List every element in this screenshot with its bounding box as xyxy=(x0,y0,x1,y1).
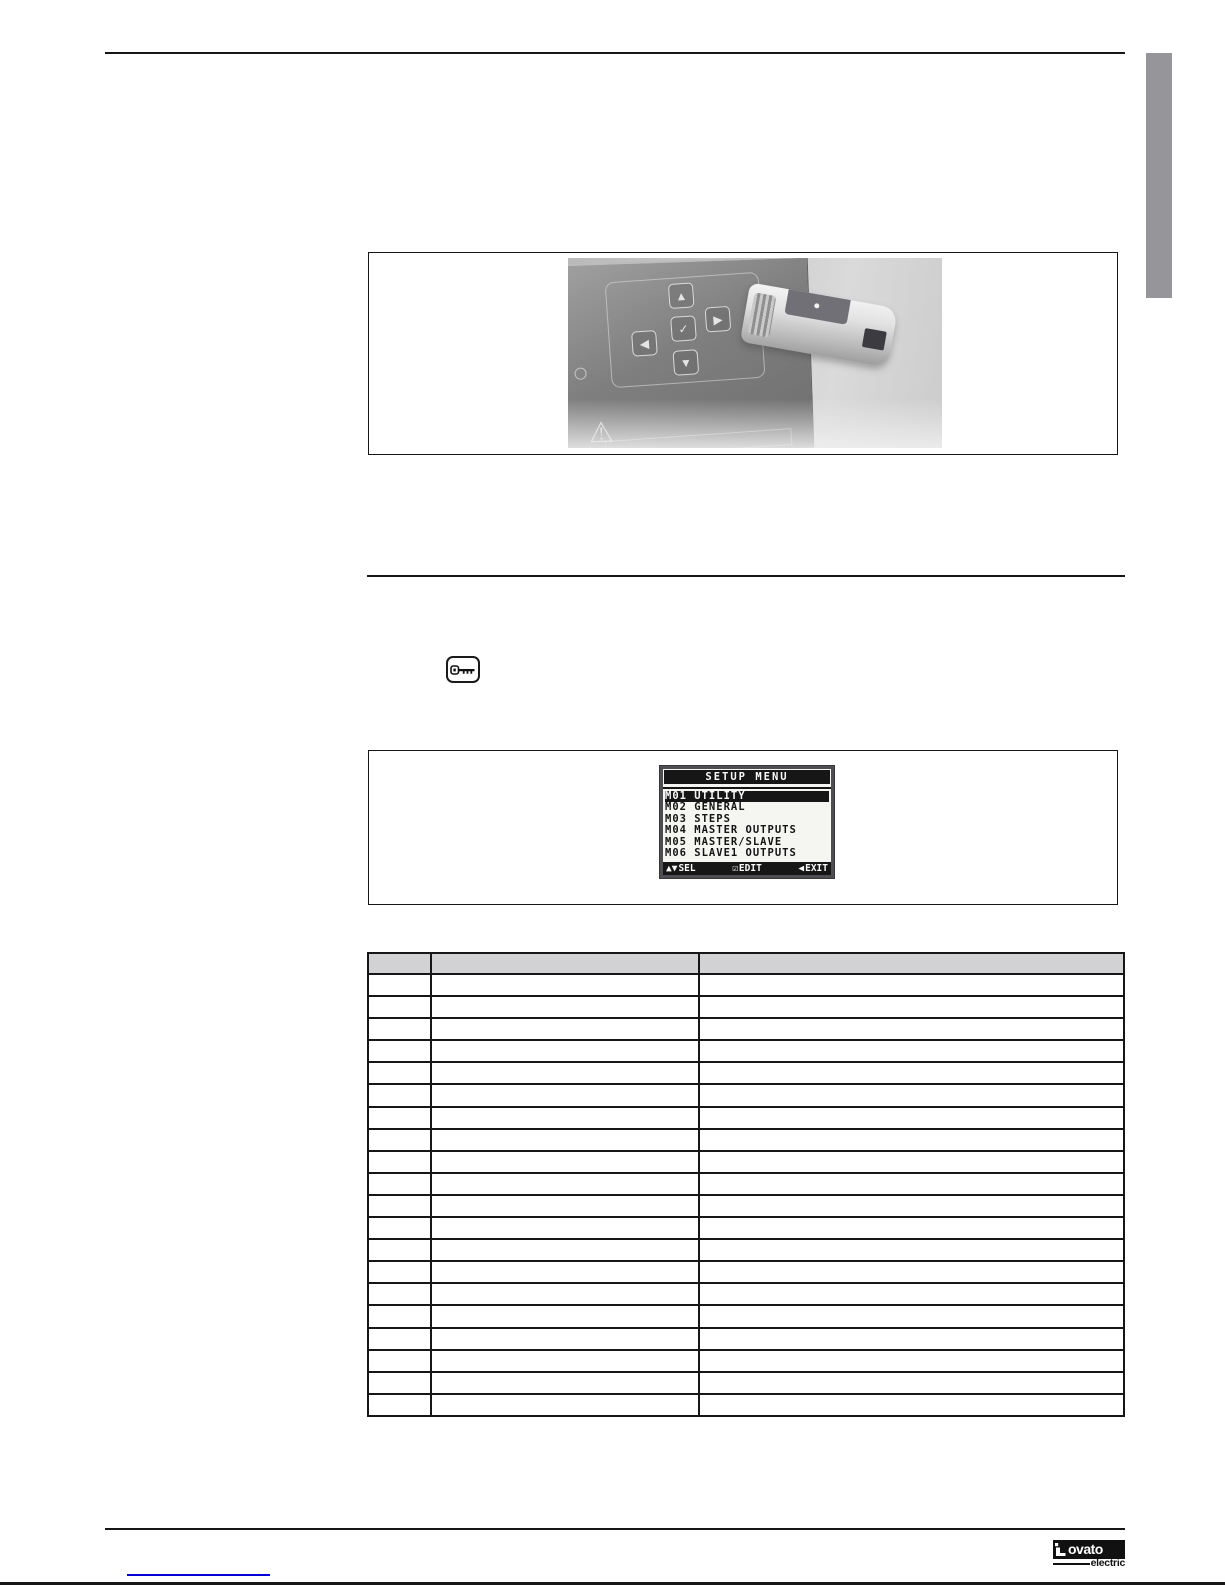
table-cell xyxy=(699,1062,1124,1084)
section-divider xyxy=(367,575,1125,577)
table-cell xyxy=(699,1261,1124,1283)
table-cell xyxy=(431,1394,699,1416)
table-cell xyxy=(699,1305,1124,1327)
lcd-title: SETUP MENU xyxy=(664,770,830,784)
table-row xyxy=(368,1394,1124,1416)
table-cell xyxy=(699,1239,1124,1261)
table-cell xyxy=(431,1129,699,1151)
key-icon xyxy=(446,656,480,683)
table-cell xyxy=(368,996,431,1018)
table-header-cell xyxy=(699,953,1124,974)
panel-symbol-icon xyxy=(574,367,586,379)
table-row xyxy=(368,1151,1124,1173)
left-arrow-button: ◀ xyxy=(631,330,658,357)
photo-figure-box: ▲ ◀ ✓ ▶ ▼ ⚠ xyxy=(368,252,1118,455)
down-arrow-button: ▼ xyxy=(673,349,700,376)
table-cell xyxy=(368,1062,431,1084)
table-cell xyxy=(431,1018,699,1040)
table-cell xyxy=(699,1173,1124,1195)
edit-check-icon: ☑ xyxy=(732,863,738,874)
hyperlink-underline[interactable] xyxy=(127,1574,270,1576)
table-row xyxy=(368,1261,1124,1283)
table-cell xyxy=(699,1328,1124,1350)
table-cell xyxy=(699,1217,1124,1239)
device-photo: ▲ ◀ ✓ ▶ ▼ ⚠ xyxy=(568,258,942,448)
table-cell xyxy=(368,1084,431,1106)
table-cell xyxy=(368,974,431,996)
up-down-arrows-icon: ▲▼ xyxy=(666,863,677,874)
check-button: ✓ xyxy=(670,315,697,342)
table-cell xyxy=(699,1350,1124,1372)
table-cell xyxy=(368,1195,431,1217)
table-cell xyxy=(699,1040,1124,1062)
table-cell xyxy=(368,1372,431,1394)
table-cell xyxy=(368,1261,431,1283)
table-cell xyxy=(431,1195,699,1217)
table-cell xyxy=(368,1328,431,1350)
table-cell xyxy=(368,1350,431,1372)
table-row xyxy=(368,1283,1124,1305)
table-cell xyxy=(431,1305,699,1327)
table-row xyxy=(368,1195,1124,1217)
table-cell xyxy=(368,1394,431,1416)
lovato-logo: ovato electric xyxy=(1053,1540,1125,1568)
table-cell xyxy=(431,1062,699,1084)
lcd-menu-item: M06 SLAVE1 OUTPUTS xyxy=(665,848,829,859)
table-cell xyxy=(368,1239,431,1261)
table-row xyxy=(368,1062,1124,1084)
table-cell xyxy=(431,1239,699,1261)
table-cell xyxy=(431,1350,699,1372)
table-cell xyxy=(431,1151,699,1173)
table-row xyxy=(368,974,1124,996)
table-row xyxy=(368,1372,1124,1394)
table-cell xyxy=(699,1129,1124,1151)
table-cell xyxy=(699,996,1124,1018)
table-cell xyxy=(699,1151,1124,1173)
table-cell xyxy=(431,1084,699,1106)
table-row xyxy=(368,1129,1124,1151)
table-cell xyxy=(699,1018,1124,1040)
table-cell xyxy=(699,1195,1124,1217)
dongle-grip xyxy=(747,292,776,337)
lcd-legend-exit: EXIT xyxy=(805,863,828,874)
table-cell xyxy=(431,974,699,996)
table-header-cell xyxy=(431,953,699,974)
table-cell xyxy=(699,1372,1124,1394)
lcd-legend-edit: EDIT xyxy=(739,863,762,874)
dongle-cap xyxy=(784,289,850,325)
table-cell xyxy=(431,996,699,1018)
table-cell xyxy=(431,1261,699,1283)
logo-sub-text: electric xyxy=(1091,1559,1125,1568)
table-row xyxy=(368,1107,1124,1129)
key-glyph xyxy=(450,663,476,677)
dongle-slot xyxy=(862,328,887,351)
table-cell xyxy=(699,1084,1124,1106)
section-side-tab xyxy=(1146,53,1172,298)
table-cell xyxy=(368,1283,431,1305)
lcd-separator xyxy=(663,787,831,789)
lcd-legend-bar: ▲▼SEL ☑EDIT ◀EXIT xyxy=(663,862,831,875)
lcd-display: SETUP MENU M01 UTILITY M02 GENERAL M03 S… xyxy=(659,765,835,879)
table-row xyxy=(368,1217,1124,1239)
table-cell xyxy=(368,1040,431,1062)
table-cell xyxy=(699,974,1124,996)
lcd-menu-list: M01 UTILITY M02 GENERAL M03 STEPS M04 MA… xyxy=(663,790,831,862)
table-cell xyxy=(699,1283,1124,1305)
table-row xyxy=(368,1018,1124,1040)
lcd-legend-sel: SEL xyxy=(678,863,695,874)
table-cell xyxy=(431,1372,699,1394)
table-cell xyxy=(699,1394,1124,1416)
photo-reflection xyxy=(568,399,942,448)
table-cell xyxy=(368,1018,431,1040)
exit-arrow-icon: ◀ xyxy=(798,863,804,874)
table-row xyxy=(368,996,1124,1018)
table-cell xyxy=(431,1040,699,1062)
lovato-mark-icon xyxy=(1055,1543,1066,1556)
table-header-cell xyxy=(368,953,431,974)
table-row xyxy=(368,1239,1124,1261)
table-row xyxy=(368,1084,1124,1106)
up-arrow-button: ▲ xyxy=(668,282,695,309)
top-rule xyxy=(105,52,1125,54)
table-cell xyxy=(368,1217,431,1239)
right-arrow-button: ▶ xyxy=(705,306,732,333)
lcd-screen: SETUP MENU M01 UTILITY M02 GENERAL M03 S… xyxy=(663,769,831,875)
lcd-menu-item: M04 MASTER OUTPUTS xyxy=(665,825,829,836)
table-cell xyxy=(699,1107,1124,1129)
table-cell xyxy=(431,1173,699,1195)
table-cell xyxy=(431,1107,699,1129)
table-row xyxy=(368,1350,1124,1372)
table-row xyxy=(368,1173,1124,1195)
logo-underline xyxy=(1053,1563,1090,1565)
table-cell xyxy=(368,1107,431,1129)
lcd-figure-box: SETUP MENU M01 UTILITY M02 GENERAL M03 S… xyxy=(368,750,1118,905)
table-row xyxy=(368,1328,1124,1350)
table-header-row xyxy=(368,953,1124,974)
table-cell xyxy=(368,1305,431,1327)
table-cell xyxy=(368,1151,431,1173)
table-cell xyxy=(368,1173,431,1195)
table-cell xyxy=(431,1283,699,1305)
table-row xyxy=(368,1305,1124,1327)
table-cell xyxy=(368,1129,431,1151)
bottom-rule xyxy=(105,1528,1125,1530)
parameter-table xyxy=(367,952,1125,1417)
table-cell xyxy=(431,1328,699,1350)
table-row xyxy=(368,1040,1124,1062)
table-cell xyxy=(431,1217,699,1239)
